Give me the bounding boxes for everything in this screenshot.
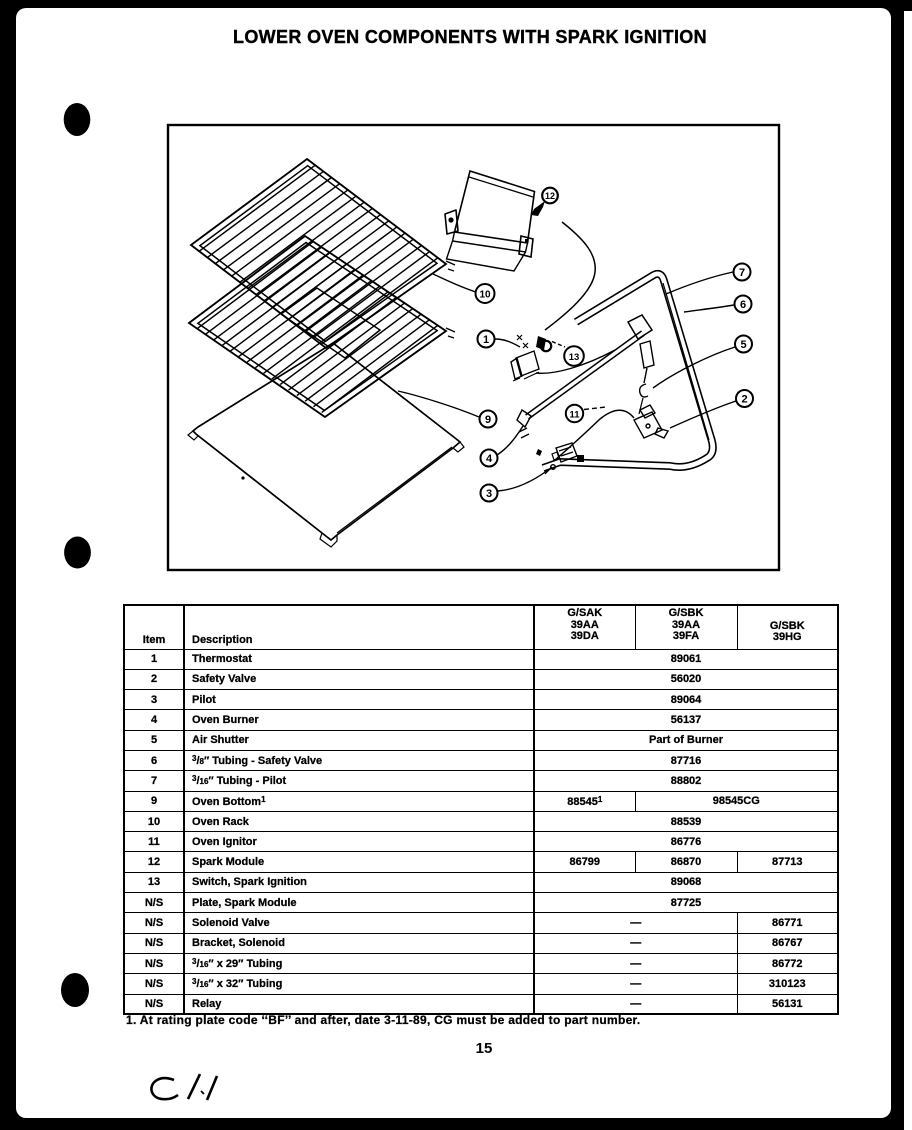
svg-text:9: 9 bbox=[485, 414, 491, 426]
svg-text:10: 10 bbox=[479, 290, 491, 301]
svg-text:3: 3 bbox=[486, 488, 492, 500]
svg-text:13: 13 bbox=[569, 352, 580, 363]
svg-text:4: 4 bbox=[486, 453, 493, 465]
svg-text:11: 11 bbox=[569, 410, 580, 421]
svg-text:12: 12 bbox=[545, 191, 555, 201]
svg-text:5: 5 bbox=[740, 339, 746, 351]
svg-text:1: 1 bbox=[483, 334, 489, 346]
svg-text:7: 7 bbox=[739, 267, 745, 279]
svg-text:2: 2 bbox=[741, 394, 747, 406]
svg-text:6: 6 bbox=[740, 299, 746, 311]
